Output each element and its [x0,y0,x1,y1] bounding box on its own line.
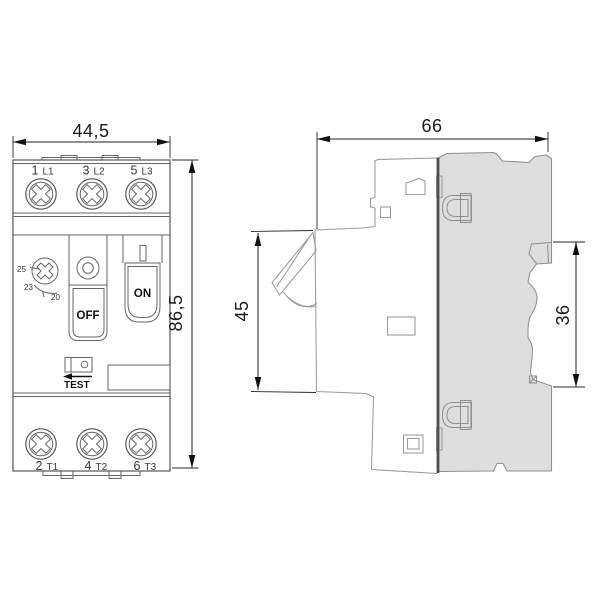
terminal-label: 2 [36,459,43,473]
terminal-label: L1 [43,167,55,178]
off-button-label: OFF [77,310,100,322]
terminal-label: T1 [47,462,59,473]
dimension-side-rail-section: 36 [553,242,585,387]
terminal-label: 3 [83,164,90,178]
drawing-canvas: 1 L1 3 L2 5 L3 [0,0,600,600]
screw-terminal [126,429,156,459]
front-top-tabs [42,156,140,161]
screw-terminal [26,429,56,459]
front-height-value: 86,5 [166,294,186,331]
terminal-label: 6 [134,459,141,473]
off-button-column: OFF [69,235,107,341]
nameplate-area [108,365,170,390]
current-adjust-dial: 25 23 20 [17,258,60,302]
test-control: TEST [63,358,92,392]
screw-terminal [77,179,107,209]
terminal-label: T3 [145,462,157,473]
screw-terminal [77,429,107,459]
terminal-label: 4 [85,459,92,473]
dimension-front-height: 86,5 [166,160,199,468]
side-front-housing [315,158,437,474]
terminal-label: 5 [131,164,138,178]
screw-terminal [26,179,56,209]
dimensional-drawing: 1 L1 3 L2 5 L3 [0,0,600,600]
dial-scale-label: 23 [24,283,33,292]
dial-scale-label: 20 [51,293,60,302]
terminal-label: T2 [96,462,108,473]
side-front-depth-value: 45 [232,300,252,321]
front-width-value: 44,5 [72,121,109,141]
terminal-label: 1 [32,164,39,178]
dial-scale-label: 25 [17,265,26,274]
terminal-label: L2 [94,167,106,178]
on-button-label: ON [134,288,151,300]
bottom-terminal-labels: 2 T1 4 T2 6 T3 [36,459,157,473]
screw-terminals-bottom [26,429,156,459]
side-width-value: 66 [421,116,442,136]
side-rail-section-value: 36 [553,304,573,325]
terminal-label: L3 [142,167,154,178]
dimension-side-front-depth: 45 [232,231,316,393]
on-button-column: ON [123,235,162,322]
dimension-front-width: 44,5 [13,121,170,158]
top-terminal-labels: 1 L1 3 L2 5 L3 [32,164,154,178]
screw-terminal [126,179,156,209]
test-label: TEST [64,380,90,391]
side-view [272,153,552,474]
toggle-lever-side [272,233,317,307]
screw-terminals-top [26,179,156,209]
trip-indicator-button [77,257,99,279]
front-view: 1 L1 3 L2 5 L3 [13,156,170,479]
